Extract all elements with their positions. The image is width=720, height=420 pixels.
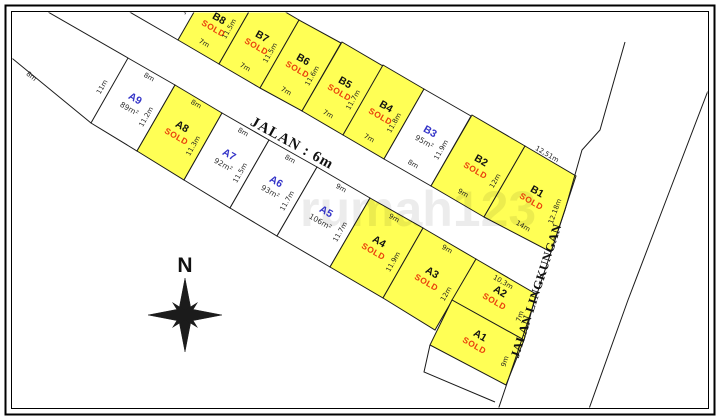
site-plan-svg: rumah123B8SOLDB7SOLDB6SOLDB5SOLDB4SOLDB3… [0, 0, 720, 420]
dimension-NW_boundary: 8m [24, 70, 38, 83]
site-plan-page: rumah123B8SOLDB7SOLDB6SOLDB5SOLDB4SOLDB3… [0, 0, 720, 420]
boundary-line [48, 12, 128, 58]
boundary-line [2, 50, 91, 123]
side-road-right-edge [585, 75, 714, 420]
compass-rose: N [148, 254, 222, 352]
north-label: N [177, 254, 192, 277]
